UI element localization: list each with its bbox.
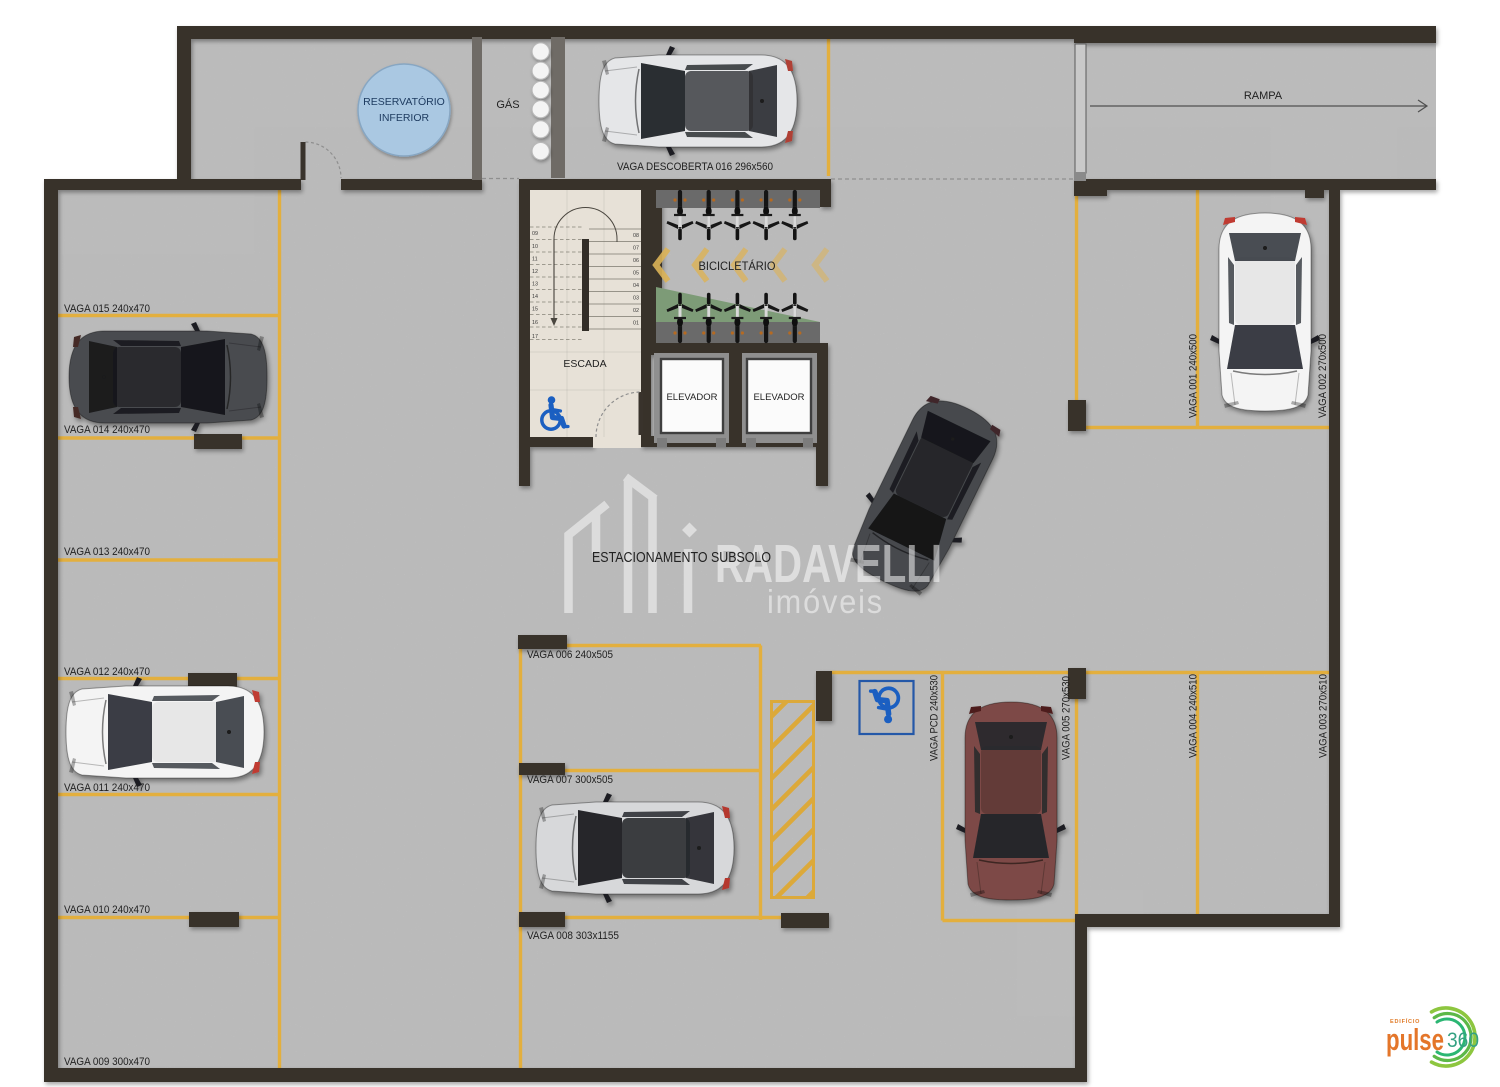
svg-text:02: 02 [633, 308, 639, 314]
svg-text:360: 360 [1447, 1029, 1479, 1052]
svg-text:imóveis: imóveis [767, 583, 884, 620]
svg-text:VAGA 007 300x505: VAGA 007 300x505 [527, 774, 613, 786]
svg-text:13: 13 [532, 282, 538, 288]
svg-text:VAGA 011 240x470: VAGA 011 240x470 [64, 782, 150, 794]
svg-text:04: 04 [633, 283, 639, 289]
svg-text:VAGA 003 270x510: VAGA 003 270x510 [1318, 674, 1330, 758]
svg-text:14: 14 [532, 294, 538, 300]
svg-text:RESERVATÓRIO: RESERVATÓRIO [363, 95, 445, 108]
svg-text:INFERIOR: INFERIOR [379, 112, 430, 124]
svg-text:10: 10 [532, 244, 538, 250]
svg-text:08: 08 [633, 233, 639, 239]
svg-text:VAGA 004 240x510: VAGA 004 240x510 [1188, 674, 1200, 758]
svg-text:VAGA 008 303x1155: VAGA 008 303x1155 [527, 930, 619, 942]
svg-text:VAGA 010 240x470: VAGA 010 240x470 [64, 904, 150, 916]
svg-text:17: 17 [532, 334, 538, 340]
svg-text:12: 12 [532, 269, 538, 275]
svg-text:VAGA 006 240x505: VAGA 006 240x505 [527, 649, 613, 661]
svg-text:11: 11 [532, 257, 538, 263]
svg-text:ELEVADOR: ELEVADOR [666, 392, 717, 403]
svg-text:VAGA DESCOBERTA 016 296x560: VAGA DESCOBERTA 016 296x560 [617, 161, 773, 173]
svg-text:01: 01 [633, 321, 639, 327]
svg-text:VAGA 014 240x470: VAGA 014 240x470 [64, 424, 150, 436]
svg-text:pulse: pulse [1386, 1022, 1444, 1057]
svg-text:VAGA 009 300x470: VAGA 009 300x470 [64, 1056, 150, 1068]
svg-text:ELEVADOR: ELEVADOR [753, 392, 804, 403]
svg-text:VAGA PCD 240x530: VAGA PCD 240x530 [929, 675, 941, 761]
svg-text:05: 05 [633, 271, 639, 277]
svg-text:ESCADA: ESCADA [563, 358, 606, 370]
svg-text:BICICLETÁRIO: BICICLETÁRIO [699, 260, 776, 273]
svg-text:VAGA 001 240x500: VAGA 001 240x500 [1188, 334, 1200, 418]
svg-text:07: 07 [633, 246, 639, 252]
svg-text:15: 15 [532, 307, 538, 313]
svg-text:VAGA 013 240x470: VAGA 013 240x470 [64, 546, 150, 558]
svg-text:VAGA 012 240x470: VAGA 012 240x470 [64, 666, 150, 678]
svg-text:VAGA 005 270x530: VAGA 005 270x530 [1061, 676, 1073, 760]
svg-text:03: 03 [633, 296, 639, 302]
svg-text:16: 16 [532, 320, 538, 326]
svg-text:RAMPA: RAMPA [1244, 90, 1283, 102]
svg-text:VAGA 015 240x470: VAGA 015 240x470 [64, 303, 150, 315]
svg-text:GÁS: GÁS [496, 98, 519, 111]
svg-text:06: 06 [633, 258, 639, 264]
svg-text:VAGA 002 270x500: VAGA 002 270x500 [1317, 334, 1329, 418]
svg-text:ESTACIONAMENTO SUBSOLO: ESTACIONAMENTO SUBSOLO [592, 550, 771, 566]
svg-text:09: 09 [532, 231, 538, 237]
